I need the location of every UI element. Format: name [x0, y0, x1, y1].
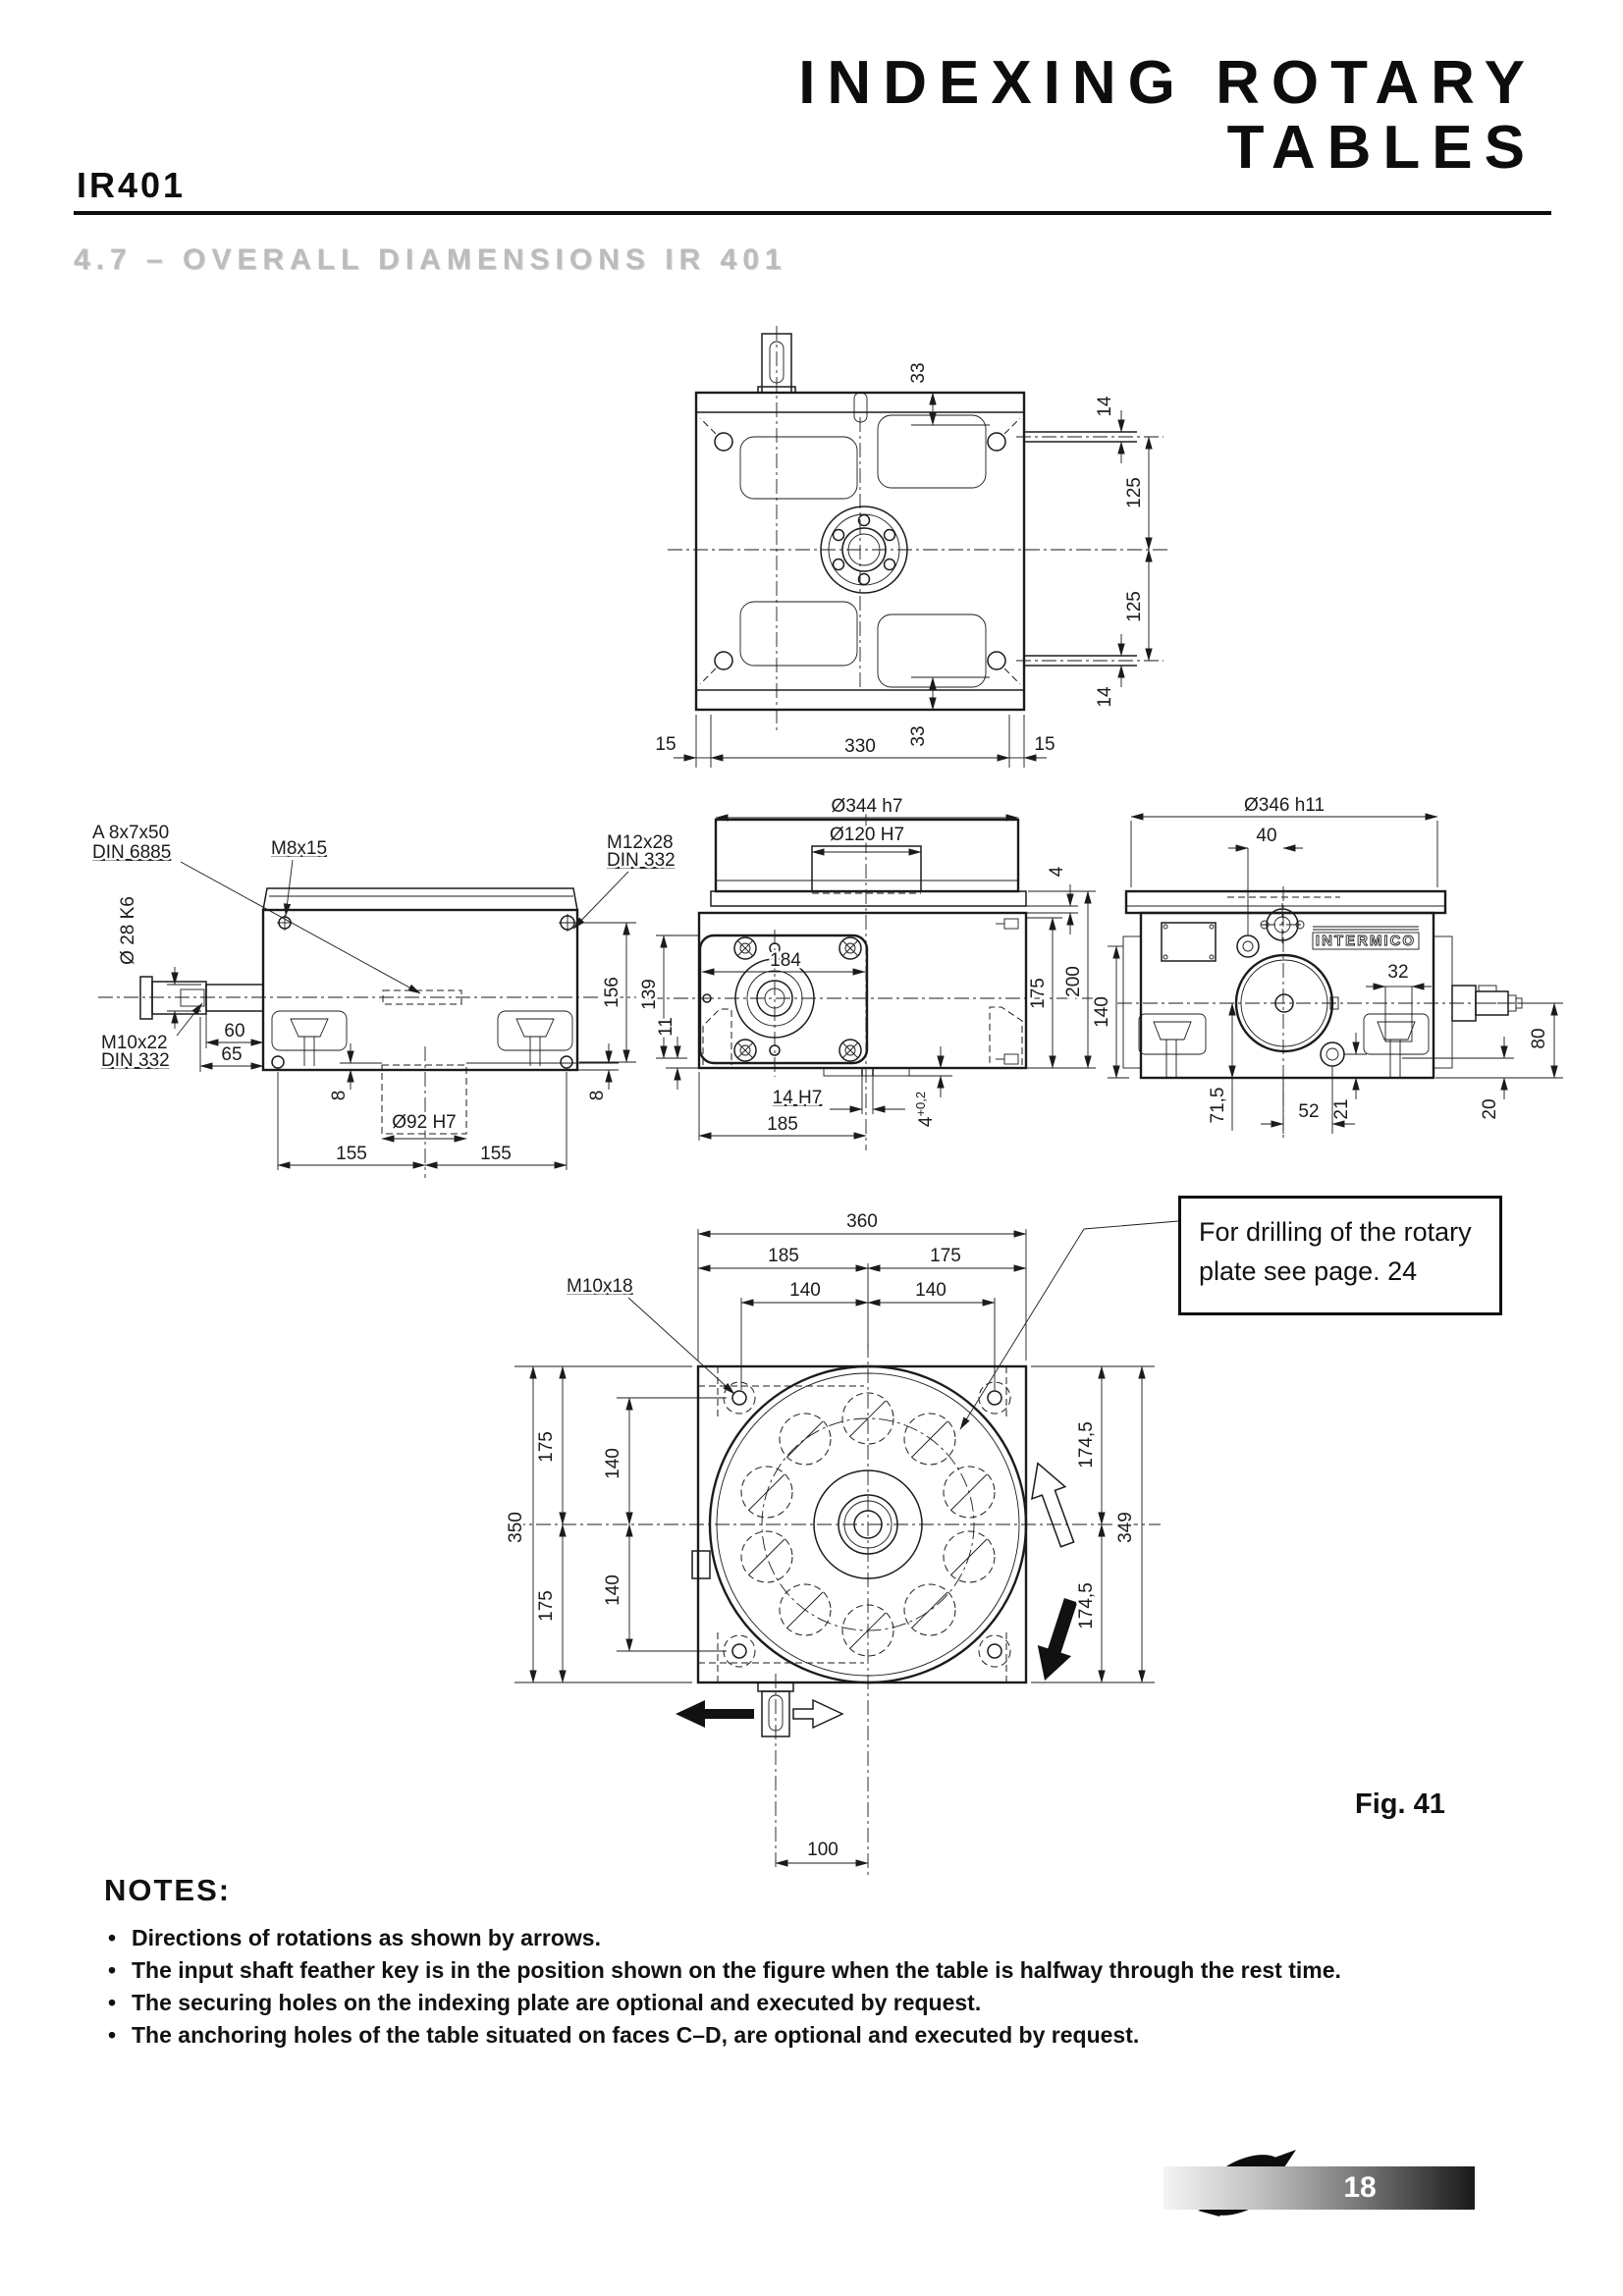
dim-52: 52 — [1298, 1101, 1319, 1122]
note-item: The input shaft feather key is in the po… — [104, 1954, 1498, 1987]
top-view-drawing: 33 14 125 125 14 15 330 33 15 — [655, 326, 1170, 768]
dim-92: Ø92 H7 — [392, 1112, 456, 1133]
dim-200: 200 — [1063, 966, 1084, 997]
dim-100: 100 — [807, 1840, 839, 1860]
dim-175-plate: 175 — [930, 1246, 961, 1266]
label-tap-shaft-din: DIN 332 — [101, 1050, 170, 1071]
dim-8-left: 8 — [329, 1091, 350, 1101]
note-item: The securing holes on the indexing plate… — [104, 1987, 1498, 2019]
footer-bar — [1163, 2166, 1475, 2210]
dim-175-upper: 175 — [536, 1431, 557, 1463]
dim-140-wr: 140 — [915, 1280, 947, 1301]
dim-344: Ø344 h7 — [832, 796, 903, 817]
dim-346: Ø346 h11 — [1244, 795, 1325, 816]
front-view-drawing: Ø344 h7 Ø120 H7 4 184 139 11 14 H7 185 — [639, 796, 1100, 1150]
dim-350: 350 — [506, 1512, 526, 1543]
dim-125-lower: 125 — [1124, 591, 1145, 622]
dim-4-slot: 4+0,2 — [913, 1092, 937, 1127]
dim-174-5-upper: 174,5 — [1076, 1421, 1097, 1468]
dim-174-5-lower: 174,5 — [1076, 1582, 1097, 1629]
dim-185: 185 — [767, 1114, 798, 1135]
callout-note: For drilling of the rotary plate see pag… — [1178, 1196, 1502, 1315]
dim-125-upper: 125 — [1124, 477, 1145, 508]
dim-175: 175 — [1028, 978, 1049, 1009]
intermeco-nameplate: INTERMICO — [1316, 933, 1416, 949]
dim-330: 330 — [844, 736, 876, 757]
side-view-drawing: A 8x7x50 DIN 6885 M8x15 Ø 28 K6 M10x22 D… — [92, 823, 676, 1178]
dim-15-right: 15 — [1034, 734, 1055, 755]
dim-140-lower: 140 — [603, 1575, 623, 1606]
dim-33-top: 33 — [908, 362, 929, 383]
notes-section: NOTES: Directions of rotations as shown … — [104, 1873, 1498, 2052]
dim-32: 32 — [1387, 962, 1408, 983]
page-number: 18 — [1330, 2171, 1389, 2205]
dim-4-slot-value: 4 — [916, 1116, 937, 1127]
dim-175-lower: 175 — [536, 1590, 557, 1622]
dim-155-left: 155 — [336, 1144, 367, 1164]
notes-heading: NOTES: — [104, 1873, 1498, 1908]
dim-349: 349 — [1115, 1512, 1136, 1543]
dim-14h7: 14 H7 — [773, 1088, 823, 1108]
figure-label: Fig. 41 — [1355, 1789, 1445, 1821]
dim-71-5: 71,5 — [1208, 1088, 1228, 1124]
dim-15-left: 15 — [655, 734, 676, 755]
dim-14-bottom: 14 — [1095, 686, 1115, 708]
label-tap-top: M8x15 — [271, 838, 327, 859]
dim-4-lip: 4 — [1047, 866, 1067, 877]
dim-11: 11 — [656, 1017, 676, 1037]
dim-4-slot-tol: +0,2 — [913, 1092, 928, 1117]
dim-140-end: 140 — [1092, 996, 1112, 1028]
dim-156: 156 — [602, 977, 622, 1008]
dim-20: 20 — [1480, 1098, 1500, 1119]
dim-140-upper: 140 — [603, 1448, 623, 1479]
note-item: Directions of rotations as shown by arro… — [104, 1922, 1498, 1954]
dim-21: 21 — [1331, 1098, 1352, 1119]
notes-list: Directions of rotations as shown by arro… — [104, 1922, 1498, 2052]
end-view-drawing: INTERMICO Ø346 h11 40 140 32 80 20 — [1092, 795, 1563, 1141]
dim-65: 65 — [221, 1044, 242, 1065]
dim-184: 184 — [770, 950, 801, 971]
dim-8-right: 8 — [587, 1091, 608, 1101]
label-shaft-dia: Ø 28 K6 — [118, 896, 138, 965]
dim-14-top: 14 — [1095, 396, 1115, 417]
label-tap-face-din: DIN 332 — [607, 850, 676, 871]
label-key-din: DIN 6885 — [92, 842, 171, 863]
catalog-page: INDEXING ROTARY TABLES IR401 4.7 – OVERA… — [0, 0, 1623, 2296]
dim-140-wl: 140 — [789, 1280, 821, 1301]
dim-40: 40 — [1256, 826, 1276, 846]
dim-60: 60 — [224, 1021, 244, 1041]
plate-view-drawing: M10x18 360 185 175 140 140 350 175 — [506, 1211, 1178, 1877]
dim-120: Ø120 H7 — [830, 825, 904, 845]
dim-33-bottom: 33 — [908, 725, 929, 746]
dim-185-plate: 185 — [768, 1246, 799, 1266]
dim-155-right: 155 — [480, 1144, 512, 1164]
dim-80: 80 — [1529, 1028, 1549, 1048]
label-m10x18: M10x18 — [567, 1276, 633, 1297]
label-key-spec: A 8x7x50 — [92, 823, 169, 843]
dim-139: 139 — [639, 979, 660, 1010]
dim-360: 360 — [846, 1211, 878, 1232]
note-item: The anchoring holes of the table situate… — [104, 2019, 1498, 2052]
